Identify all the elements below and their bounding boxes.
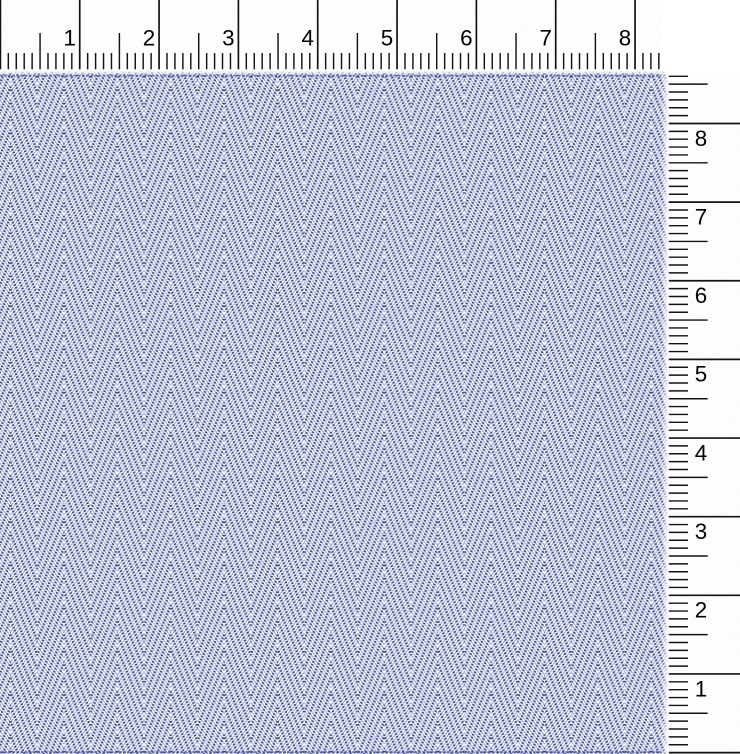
svg-text:5: 5 [381,25,393,50]
svg-text:6: 6 [695,283,707,308]
svg-text:1: 1 [63,25,75,50]
svg-text:2: 2 [695,598,707,623]
svg-text:7: 7 [539,25,551,50]
svg-text:3: 3 [222,25,234,50]
svg-text:8: 8 [695,126,707,151]
svg-text:6: 6 [460,25,472,50]
svg-text:1: 1 [695,676,707,701]
svg-text:5: 5 [695,362,707,387]
svg-text:3: 3 [695,519,707,544]
svg-text:2: 2 [143,25,155,50]
svg-text:7: 7 [695,204,707,229]
svg-text:8: 8 [619,25,631,50]
svg-text:4: 4 [301,25,313,50]
svg-text:4: 4 [695,440,707,465]
